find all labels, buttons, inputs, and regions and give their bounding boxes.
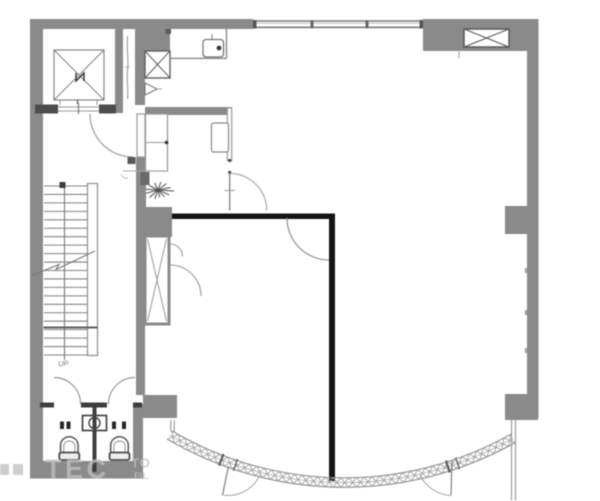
svg-text:TEC: TEC [45, 454, 110, 484]
svg-text:UP: UP [58, 359, 68, 368]
svg-text:TO: TO [131, 456, 151, 471]
svg-text:FIL: FIL [134, 471, 148, 482]
